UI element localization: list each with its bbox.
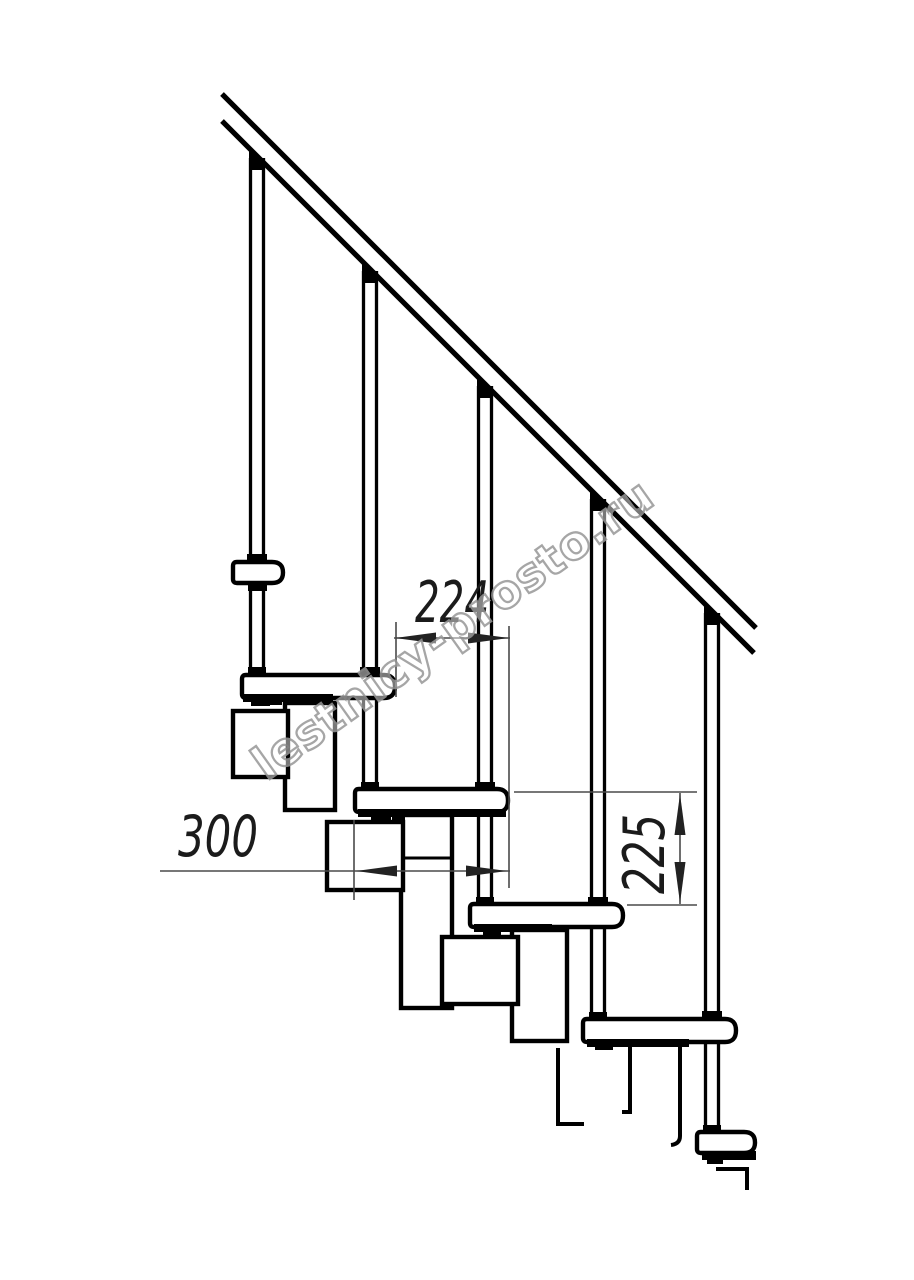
rod-collar — [476, 897, 494, 905]
arrowhead-right — [466, 866, 507, 877]
rod-collar — [589, 1012, 607, 1020]
tread-2 — [355, 789, 508, 812]
rod-collar — [703, 1125, 721, 1133]
fastener-tab — [371, 814, 391, 821]
watermark: lestnicy-prosto.ru — [242, 468, 664, 791]
baluster-rod-3 — [479, 386, 492, 905]
fastener-tab — [707, 1158, 723, 1164]
staircase-drawing: 224 300 225 lestnicy-prosto.ru — [0, 0, 914, 1280]
baluster-rod-5 — [706, 613, 719, 1133]
fastener-tab — [595, 1044, 613, 1050]
module-partial-line — [622, 1046, 630, 1112]
module-box — [327, 822, 403, 890]
rod-collar — [588, 897, 608, 905]
tread-4 — [583, 1019, 736, 1042]
upper-bracket-tread — [233, 562, 283, 583]
rod-collar — [475, 782, 495, 790]
watermark-text: lestnicy-prosto.ru — [242, 468, 664, 791]
rod-collar — [248, 667, 266, 675]
fastener-tab — [251, 699, 270, 706]
module-box — [512, 930, 567, 1041]
tread-5 — [697, 1132, 755, 1153]
fastener-bar — [248, 584, 267, 591]
baluster-rod-1 — [251, 158, 264, 675]
rod-collar — [361, 782, 379, 790]
module-partial-line — [671, 1046, 680, 1145]
module-box — [442, 937, 518, 1004]
drawing-page: 224 300 225 lestnicy-prosto.ru — [0, 0, 914, 1280]
dimension-225-label: 225 — [612, 814, 678, 894]
module-partial-line — [558, 1048, 584, 1124]
fastener-tab — [270, 700, 282, 705]
rod-collar — [247, 554, 267, 562]
fastener-tab — [483, 929, 501, 935]
handrail-top-line — [222, 94, 756, 628]
fastener-tab — [392, 815, 405, 820]
rod-collar — [702, 1011, 722, 1019]
tread-3 — [470, 904, 623, 927]
baluster-rod-4 — [592, 499, 605, 1020]
dimension-300-label: 300 — [178, 804, 258, 870]
module-partial-line — [716, 1169, 747, 1190]
